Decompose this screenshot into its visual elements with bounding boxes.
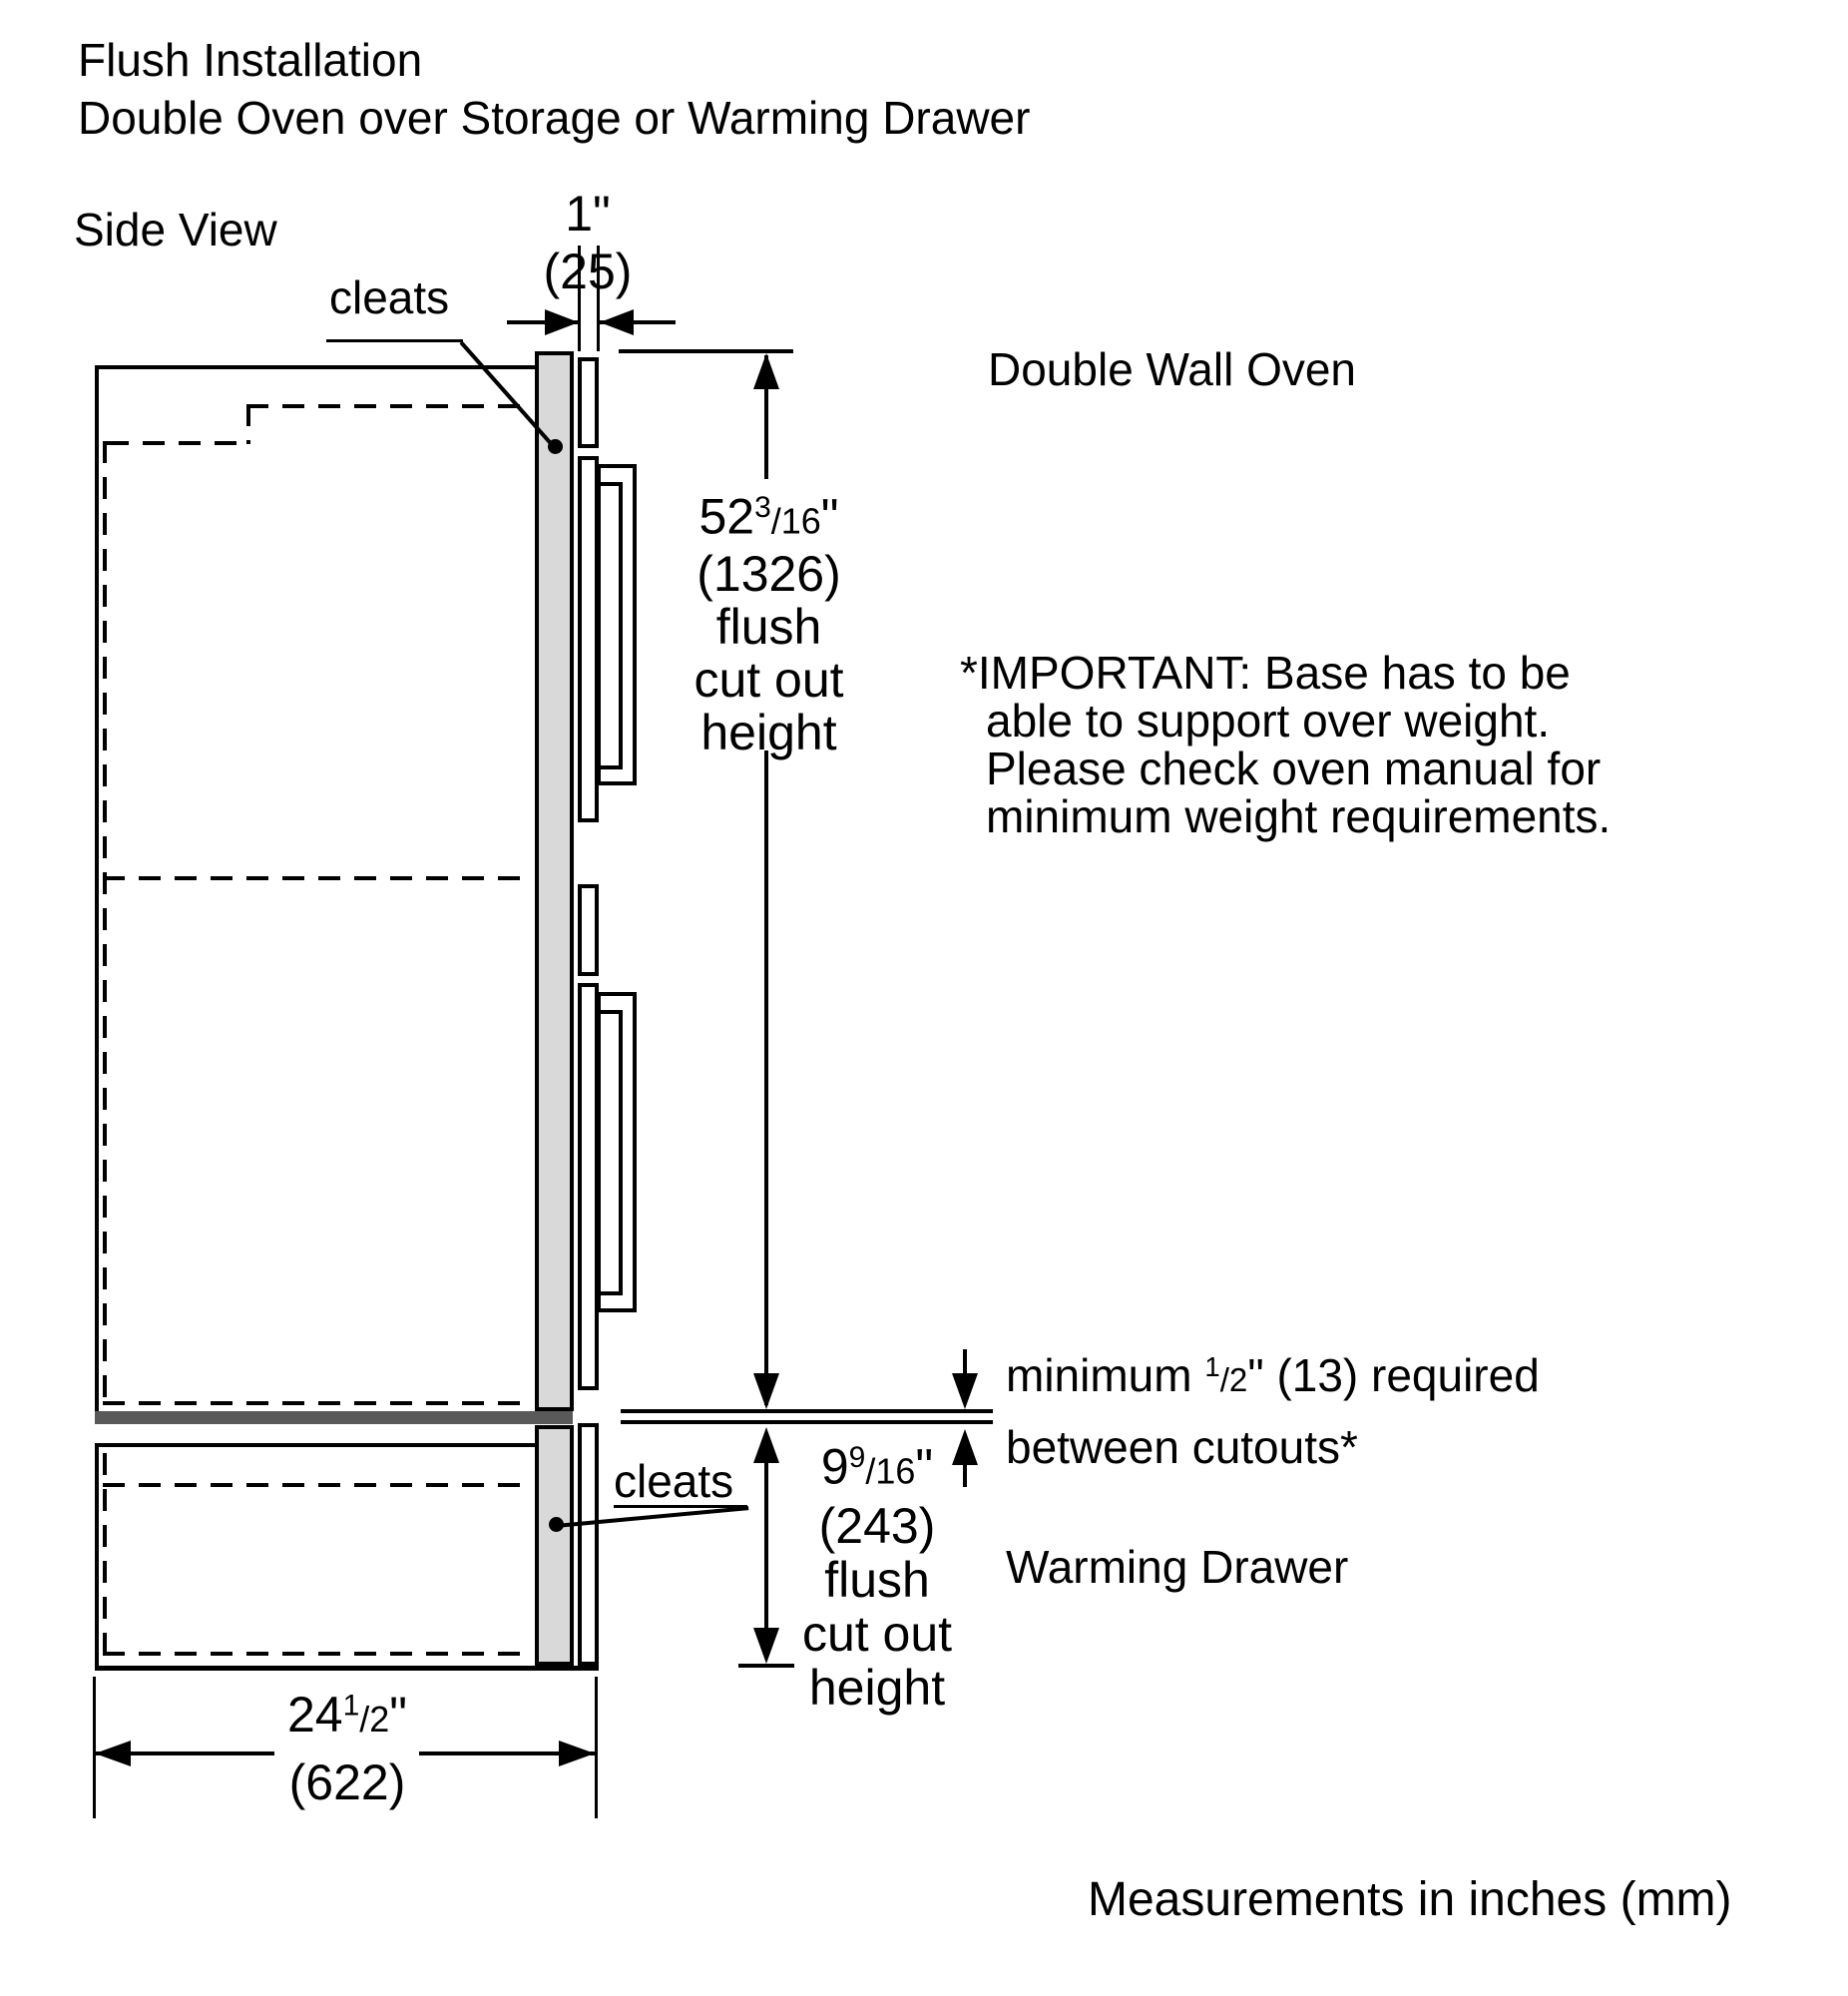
dashed-bottom-upper <box>103 1401 534 1405</box>
important-note-line2: able to support over weight. <box>960 697 1611 745</box>
arrow-left-icon <box>600 309 634 335</box>
drawer-cutout-dimension: 99/16" (243) flush cut out height <box>788 1431 966 1715</box>
oven-cutout-mm: (1326) <box>667 548 871 601</box>
depth-dimension-mm: (622) <box>267 1754 427 1812</box>
drawer-front-flange <box>578 1423 599 1666</box>
extension-tick-drawer-bottom <box>738 1664 794 1668</box>
arrow-left-icon <box>95 1741 131 1766</box>
cabinet-top-line <box>95 365 537 369</box>
drawer-cabinet-left-line <box>95 1443 99 1670</box>
page-title-line2: Double Oven over Storage or Warming Draw… <box>78 92 1030 145</box>
oven-cutout-value: 523/16" <box>667 481 871 548</box>
oven-cutout-desc1: flush <box>667 601 871 654</box>
cabinet-separator-band <box>95 1411 573 1424</box>
dashed-step-vertical <box>246 404 250 444</box>
extension-line-1in-left <box>578 246 581 351</box>
important-note-line3: Please check oven manual for <box>960 745 1611 792</box>
dashed-middle-horizontal <box>103 876 534 880</box>
page-title-line1: Flush Installation <box>78 34 422 87</box>
dashed-left-vertical-upper <box>103 441 107 1407</box>
drawer-cabinet-bottom-line <box>95 1666 599 1671</box>
dashed-step-top <box>246 404 534 408</box>
oven-flange-top <box>578 357 599 448</box>
oven-cutout-desc2: cut out <box>667 654 871 707</box>
important-note-line1: *IMPORTANT: Base has to be <box>960 649 1611 697</box>
cleats-label-top: cleats <box>329 271 449 324</box>
cleats-top-leader-horizontal <box>326 339 463 342</box>
upper-cleat <box>535 351 574 1411</box>
cleats-bottom-leader-dot <box>549 1517 564 1532</box>
min-gap-note-line1: minimum 1/2" (13) required <box>1006 1349 1540 1402</box>
drawer-cutout-desc2: cut out <box>788 1607 966 1661</box>
dim-oven-line-lower <box>764 750 768 1405</box>
cleat-thickness-mm: (25) <box>538 244 638 301</box>
min-gap-note-line2: between cutouts* <box>1006 1421 1358 1474</box>
arrow-down-icon <box>753 1373 779 1409</box>
drawer-cabinet-top-line <box>95 1443 537 1447</box>
oven-flange-upper-door <box>578 456 599 822</box>
oven-flange-middle <box>578 884 599 976</box>
upper-oven-door-inner <box>597 482 623 769</box>
oven-flange-lower-door <box>578 983 599 1390</box>
drawer-cutout-value: 99/16" <box>788 1431 966 1499</box>
drawer-cutout-desc3: height <box>788 1661 966 1715</box>
drawer-cutout-desc1: flush <box>788 1553 966 1607</box>
arrow-right-icon <box>545 309 579 335</box>
between-cutouts-line-bottom <box>621 1420 993 1424</box>
dim-drawer-line <box>764 1459 768 1634</box>
drawer-cutout-mm: (243) <box>788 1499 966 1553</box>
depth-dimension-value: 241/2" <box>267 1687 427 1745</box>
arrow-down-icon <box>952 1373 978 1409</box>
oven-cutout-dimension: 523/16" (1326) flush cut out height <box>667 481 871 759</box>
cabinet-left-line <box>95 365 99 1415</box>
arrow-up-icon <box>753 1427 779 1463</box>
extension-line-depth-right <box>595 1677 598 1818</box>
installation-diagram: Flush Installation Double Oven over Stor… <box>0 0 1848 1996</box>
dashed-step-lower <box>107 441 250 445</box>
arrow-down-icon <box>753 1628 779 1664</box>
drawer-cleat <box>535 1425 574 1666</box>
cleat-thickness-inches: 1" <box>538 186 638 244</box>
important-note: *IMPORTANT: Base has to be able to suppo… <box>960 649 1611 840</box>
side-view-label: Side View <box>74 204 277 256</box>
measurements-note: Measurements in inches (mm) <box>1088 1872 1732 1927</box>
dashed-bottom-drawer <box>103 1652 534 1656</box>
lower-oven-door-inner <box>597 1010 623 1295</box>
arrow-up-icon <box>753 353 779 389</box>
arrow-right-icon <box>559 1741 595 1766</box>
cleats-top-leader-dot <box>548 439 563 454</box>
oven-cutout-desc3: height <box>667 707 871 759</box>
dashed-top-drawer <box>103 1483 534 1487</box>
important-note-line4: minimum weight requirements. <box>960 792 1611 840</box>
warming-drawer-label: Warming Drawer <box>1006 1541 1348 1594</box>
extension-line-1in-right <box>597 246 600 351</box>
cleats-label-bottom: cleats <box>614 1455 733 1508</box>
between-cutouts-line-top <box>621 1409 993 1413</box>
double-wall-oven-label: Double Wall Oven <box>988 343 1356 396</box>
